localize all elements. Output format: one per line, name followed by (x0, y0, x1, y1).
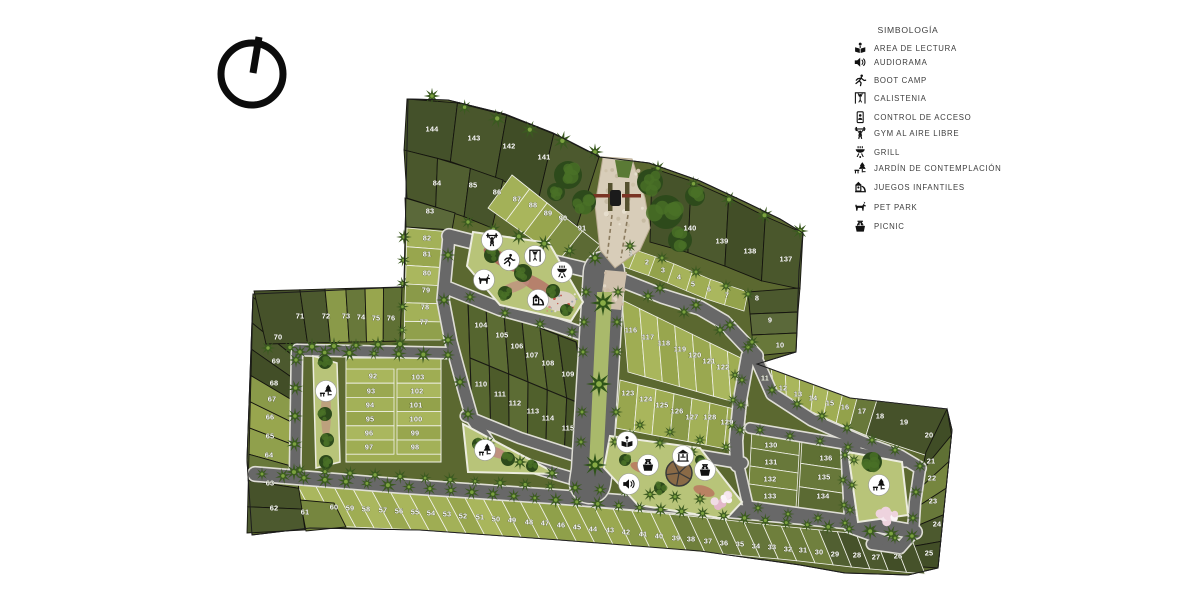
svg-text:23: 23 (929, 496, 938, 505)
svg-text:76: 76 (387, 313, 396, 322)
svg-text:117: 117 (642, 332, 655, 341)
svg-text:105: 105 (496, 330, 509, 339)
svg-text:66: 66 (266, 412, 275, 421)
svg-text:119: 119 (674, 344, 687, 353)
svg-text:41: 41 (639, 529, 648, 538)
svg-text:133: 133 (764, 491, 777, 500)
svg-text:64: 64 (265, 450, 274, 459)
svg-text:71: 71 (296, 311, 305, 320)
svg-text:123: 123 (622, 388, 635, 397)
svg-text:132: 132 (764, 474, 777, 483)
svg-text:88: 88 (529, 200, 538, 209)
svg-text:42: 42 (622, 527, 631, 536)
svg-text:60: 60 (330, 502, 339, 511)
svg-text:15: 15 (826, 398, 835, 407)
svg-text:33: 33 (768, 542, 777, 551)
svg-text:17: 17 (858, 406, 867, 415)
svg-text:141: 141 (538, 152, 551, 161)
svg-text:69: 69 (272, 356, 281, 365)
svg-text:52: 52 (459, 511, 468, 520)
svg-text:25: 25 (925, 548, 934, 557)
svg-text:AREA DE LECTURA: AREA DE LECTURA (874, 44, 957, 53)
svg-text:79: 79 (422, 285, 431, 294)
svg-text:93: 93 (367, 386, 376, 395)
svg-text:137: 137 (780, 254, 793, 263)
svg-text:50: 50 (492, 514, 501, 523)
svg-text:57: 57 (379, 505, 388, 514)
svg-text:87: 87 (513, 194, 522, 203)
svg-text:45: 45 (573, 522, 582, 531)
svg-text:39: 39 (672, 533, 681, 542)
svg-text:27: 27 (872, 552, 881, 561)
svg-text:136: 136 (820, 453, 833, 462)
svg-text:62: 62 (270, 503, 279, 512)
svg-text:65: 65 (266, 431, 275, 440)
svg-text:55: 55 (411, 507, 420, 516)
svg-text:139: 139 (716, 236, 729, 245)
svg-text:111: 111 (494, 389, 506, 398)
svg-text:GYM AL AIRE LIBRE: GYM AL AIRE LIBRE (874, 129, 959, 138)
svg-text:104: 104 (475, 320, 489, 329)
svg-text:77: 77 (420, 317, 429, 326)
svg-text:38: 38 (687, 534, 696, 543)
svg-text:8: 8 (755, 293, 759, 302)
svg-text:83: 83 (426, 206, 435, 215)
svg-text:GRILL: GRILL (874, 148, 900, 157)
svg-text:63: 63 (266, 478, 275, 487)
svg-text:75: 75 (372, 313, 381, 322)
svg-text:31: 31 (799, 545, 808, 554)
svg-text:134: 134 (817, 491, 831, 500)
svg-text:19: 19 (900, 417, 909, 426)
svg-text:47: 47 (541, 518, 550, 527)
svg-text:12: 12 (779, 383, 788, 392)
svg-text:28: 28 (853, 550, 862, 559)
svg-text:43: 43 (606, 525, 615, 534)
svg-text:110: 110 (475, 379, 488, 388)
svg-text:120: 120 (689, 350, 702, 359)
svg-text:9: 9 (768, 315, 772, 324)
svg-text:53: 53 (443, 509, 452, 518)
svg-text:130: 130 (765, 440, 778, 449)
svg-text:144: 144 (426, 124, 440, 133)
svg-text:CALISTENIA: CALISTENIA (874, 94, 927, 103)
svg-text:21: 21 (927, 456, 936, 465)
svg-text:138: 138 (744, 246, 757, 255)
svg-text:48: 48 (525, 517, 534, 526)
svg-text:44: 44 (589, 524, 598, 533)
svg-text:125: 125 (656, 400, 669, 409)
svg-text:142: 142 (503, 141, 516, 150)
svg-text:JARDÍN DE CONTEMPLACIÓN: JARDÍN DE CONTEMPLACIÓN (874, 164, 1001, 173)
svg-text:4: 4 (677, 272, 682, 281)
svg-text:SIMBOLOGÍA: SIMBOLOGÍA (878, 25, 939, 35)
svg-text:91: 91 (578, 223, 587, 232)
svg-text:PET PARK: PET PARK (874, 203, 918, 212)
svg-text:74: 74 (357, 312, 366, 321)
svg-text:2: 2 (645, 257, 649, 266)
svg-text:121: 121 (703, 356, 716, 365)
svg-text:AUDIORAMA: AUDIORAMA (874, 58, 928, 67)
svg-text:106: 106 (511, 341, 524, 350)
svg-text:CONTROL DE ACCESO: CONTROL DE ACCESO (874, 113, 971, 122)
svg-text:86: 86 (493, 187, 502, 196)
svg-text:51: 51 (476, 512, 485, 521)
svg-text:131: 131 (765, 457, 778, 466)
svg-text:81: 81 (423, 249, 432, 258)
svg-text:108: 108 (542, 358, 555, 367)
svg-text:78: 78 (421, 302, 430, 311)
svg-text:14: 14 (809, 393, 818, 402)
svg-text:13: 13 (794, 389, 803, 398)
svg-text:34: 34 (752, 541, 761, 550)
svg-text:68: 68 (270, 378, 279, 387)
svg-text:85: 85 (469, 180, 478, 189)
svg-text:61: 61 (301, 507, 310, 516)
svg-text:49: 49 (508, 515, 517, 524)
svg-text:103: 103 (412, 372, 425, 381)
svg-text:67: 67 (268, 394, 277, 403)
svg-text:84: 84 (433, 178, 442, 187)
svg-text:109: 109 (562, 369, 575, 378)
svg-text:20: 20 (925, 430, 934, 439)
svg-text:73: 73 (342, 311, 351, 320)
svg-text:56: 56 (395, 506, 404, 515)
svg-text:124: 124 (640, 394, 654, 403)
svg-text:112: 112 (509, 398, 522, 407)
svg-text:82: 82 (423, 233, 432, 242)
svg-text:JUEGOS INFANTILES: JUEGOS INFANTILES (874, 183, 965, 192)
svg-text:29: 29 (831, 549, 840, 558)
svg-text:90: 90 (559, 213, 568, 222)
svg-text:126: 126 (671, 406, 684, 415)
svg-text:115: 115 (562, 423, 575, 432)
svg-text:95: 95 (366, 414, 375, 423)
svg-text:BOOT CAMP: BOOT CAMP (874, 76, 927, 85)
svg-text:26: 26 (894, 551, 903, 560)
svg-text:36: 36 (720, 538, 729, 547)
svg-text:116: 116 (625, 325, 638, 334)
svg-text:127: 127 (686, 412, 699, 421)
svg-text:70: 70 (274, 332, 283, 341)
svg-text:114: 114 (542, 413, 555, 422)
svg-text:102: 102 (411, 386, 424, 395)
svg-text:40: 40 (655, 531, 664, 540)
svg-text:22: 22 (928, 473, 937, 482)
svg-text:143: 143 (468, 133, 481, 142)
svg-text:6: 6 (707, 284, 711, 293)
svg-text:118: 118 (658, 338, 671, 347)
svg-text:16: 16 (841, 402, 850, 411)
svg-text:113: 113 (527, 406, 540, 415)
svg-text:97: 97 (365, 442, 374, 451)
svg-text:7: 7 (725, 290, 729, 299)
svg-text:99: 99 (411, 428, 420, 437)
svg-text:3: 3 (661, 265, 665, 274)
svg-text:89: 89 (544, 208, 553, 217)
svg-text:37: 37 (704, 536, 713, 545)
svg-text:107: 107 (526, 350, 539, 359)
svg-text:32: 32 (784, 544, 793, 553)
svg-text:1: 1 (629, 248, 633, 257)
svg-text:18: 18 (876, 411, 885, 420)
svg-text:101: 101 (410, 400, 423, 409)
svg-text:35: 35 (736, 539, 745, 548)
svg-text:122: 122 (717, 362, 730, 371)
svg-text:92: 92 (369, 371, 378, 380)
svg-text:80: 80 (423, 268, 432, 277)
svg-text:96: 96 (365, 428, 374, 437)
svg-text:30: 30 (815, 547, 824, 556)
svg-text:100: 100 (410, 414, 423, 423)
svg-text:11: 11 (761, 373, 769, 382)
svg-text:94: 94 (366, 400, 375, 409)
svg-text:128: 128 (704, 412, 717, 421)
svg-text:140: 140 (684, 223, 697, 232)
svg-text:54: 54 (427, 508, 436, 517)
svg-text:5: 5 (691, 279, 695, 288)
svg-text:58: 58 (362, 504, 371, 513)
svg-text:PICNIC: PICNIC (874, 222, 905, 231)
svg-text:135: 135 (818, 472, 831, 481)
svg-text:24: 24 (933, 519, 942, 528)
svg-text:46: 46 (557, 520, 566, 529)
svg-text:98: 98 (411, 442, 420, 451)
svg-text:59: 59 (346, 503, 355, 512)
svg-text:72: 72 (322, 311, 331, 320)
svg-text:10: 10 (776, 340, 785, 349)
svg-text:129: 129 (721, 417, 734, 426)
